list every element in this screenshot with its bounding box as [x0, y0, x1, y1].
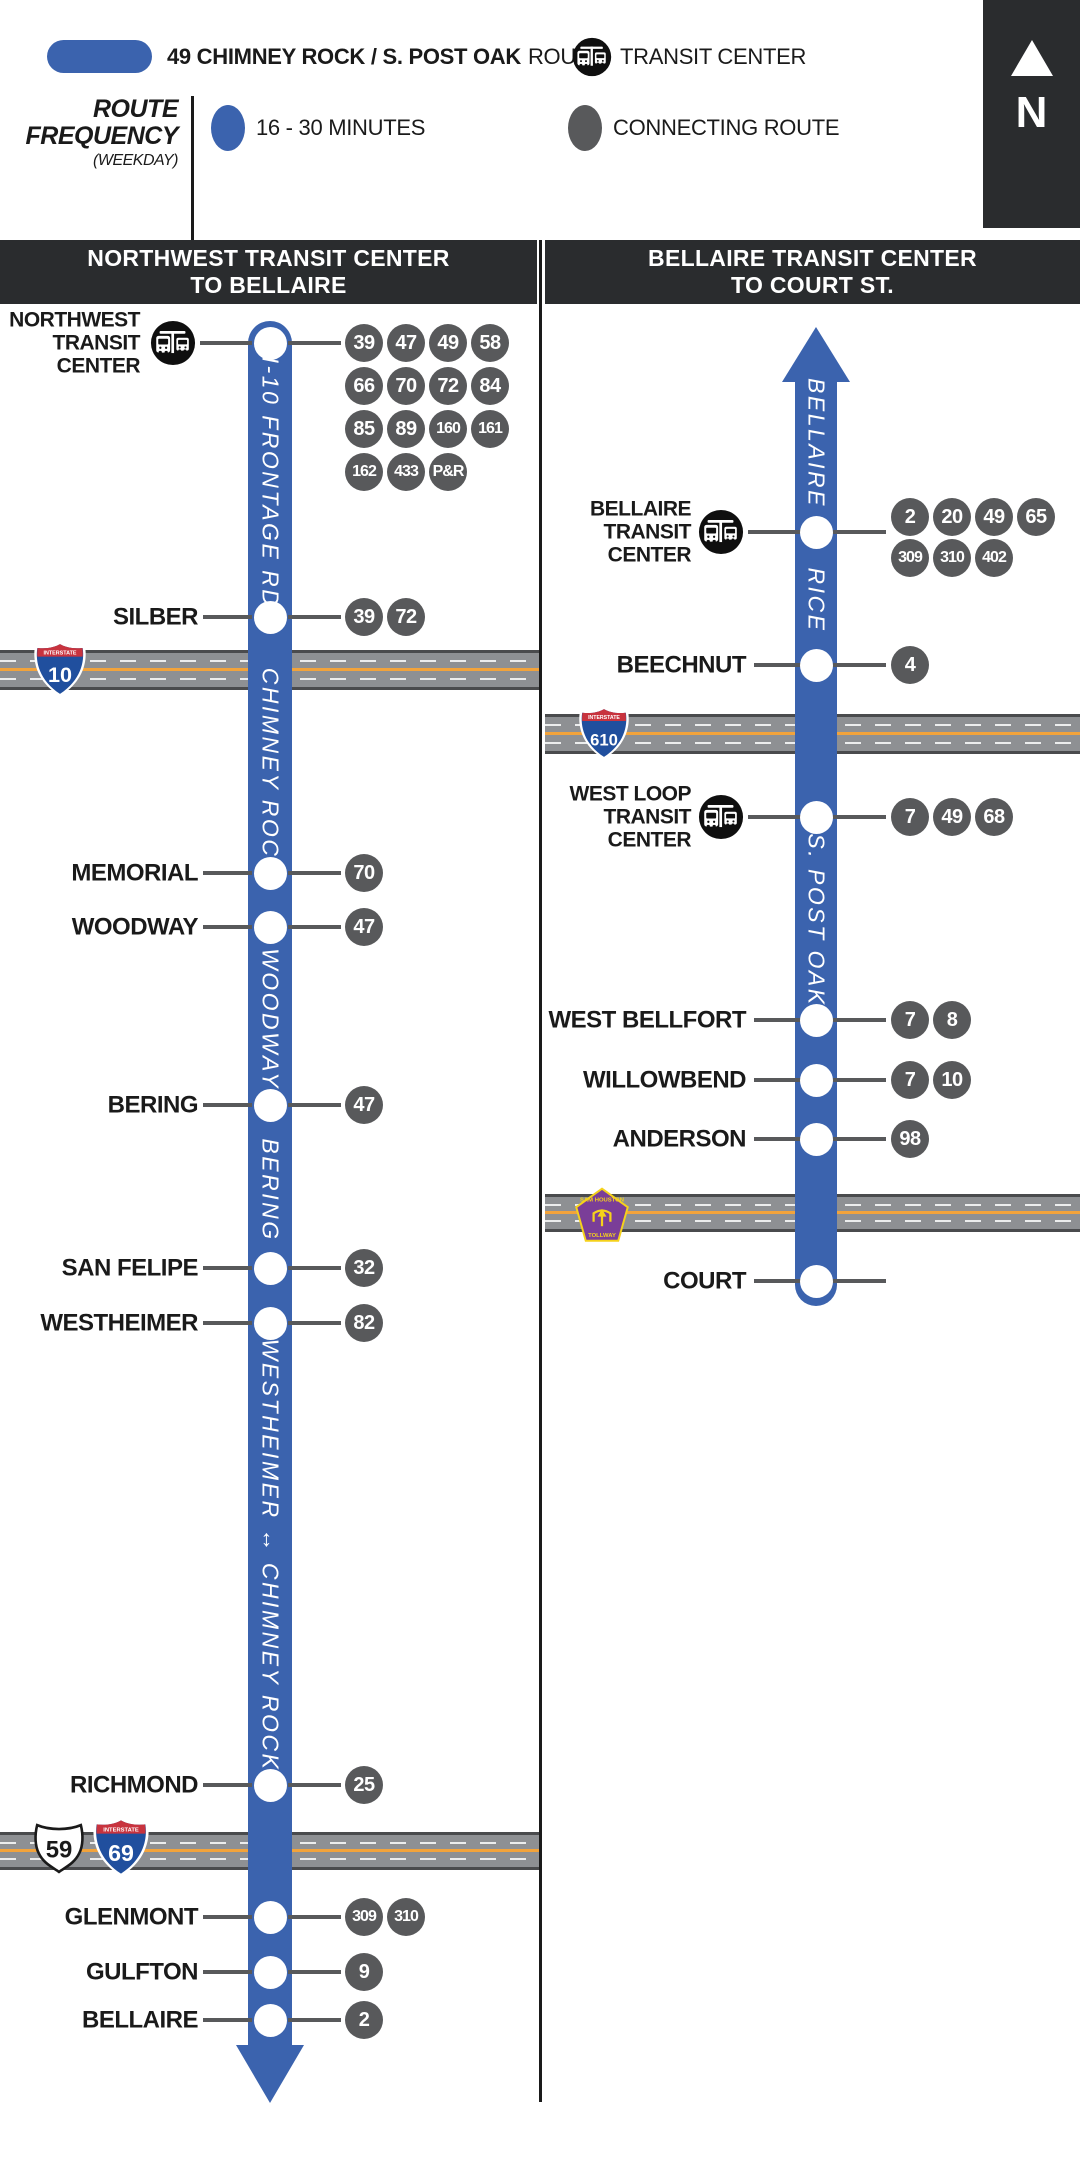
stop-tick-left: [203, 1266, 252, 1270]
stop-label-line: CENTER: [570, 829, 692, 852]
stop-label-line: TRANSIT: [9, 332, 140, 355]
connecting-route-badge: 72: [387, 598, 425, 636]
stop-tick-left: [203, 2018, 252, 2022]
stop-label-line: BERING: [108, 1093, 198, 1118]
connecting-route-badge: 309: [345, 1898, 383, 1936]
stop-label-line: CENTER: [590, 544, 691, 567]
stop-label-line: WESTHEIMER: [40, 1311, 198, 1336]
stop-label: GULFTON: [86, 1960, 198, 1985]
stop-label-line: NORTHWEST: [9, 309, 140, 332]
stop-tick-left: [200, 341, 252, 345]
transit-center-icon: [698, 794, 744, 840]
svg-text:INTERSTATE: INTERSTATE: [103, 1828, 139, 1834]
stop-marker: [254, 1956, 287, 1989]
stop-tick-right: [833, 1279, 886, 1283]
route-frequency-line1: ROUTE: [26, 96, 178, 123]
stop-label-line: CENTER: [9, 355, 140, 378]
stop-tick-left: [203, 1970, 252, 1974]
street-name-label: WESTHEIMER ↔ CHIMNEY ROCK: [257, 1339, 284, 1772]
stop-tick-right: [833, 1078, 886, 1082]
stop-marker: [800, 1064, 833, 1097]
stop-marker: [800, 649, 833, 682]
route-line-swatch: [47, 40, 152, 73]
frequency-value-label: 16 - 30 MINUTES: [256, 115, 425, 141]
stop-label-line: BEECHNUT: [617, 653, 746, 678]
street-name-label: S. POST OAK: [803, 833, 830, 1006]
connecting-route-badge: 70: [387, 367, 425, 405]
stop-label: SAN FELIPE: [62, 1256, 198, 1281]
stop-tick-right: [288, 925, 341, 929]
highway-shield-69-icon: INTERSTATE69: [92, 1816, 150, 1878]
connecting-route-badge: 160: [429, 410, 467, 448]
north-label: N: [983, 88, 1080, 138]
stop-label-line: WOODWAY: [72, 915, 198, 940]
stop-tick-right: [833, 530, 886, 534]
street-name-label: I-10 FRONTAGE RD.: [257, 357, 284, 618]
connecting-route-badge: 49: [933, 798, 971, 836]
connecting-route-badge: 89: [387, 410, 425, 448]
connecting-route-icon: [568, 105, 602, 151]
stop-label: BELLAIRE: [82, 2008, 198, 2033]
stop-label: WESTHEIMER: [40, 1311, 198, 1336]
route-map-page: 49 CHIMNEY ROCK / S. POST OAKROUTE TRANS…: [0, 0, 1080, 2161]
svg-text:69: 69: [108, 1840, 134, 1866]
stop-label: RICHMOND: [70, 1773, 198, 1798]
street-name-label: CHIMNEY ROCK: [257, 668, 284, 877]
connecting-route-badge: 9: [345, 1953, 383, 1991]
stop-marker: [254, 1901, 287, 1934]
north-arrow-icon: [1011, 40, 1053, 76]
connecting-route-badge: P&R: [429, 453, 467, 491]
stop-tick-right: [833, 663, 886, 667]
street-name-label: BERING: [257, 1138, 284, 1241]
transit-center-legend-label: TRANSIT CENTER: [620, 44, 806, 70]
connecting-route-badge: 433: [387, 453, 425, 491]
stop-label-line: TRANSIT: [590, 521, 691, 544]
stop-marker: [254, 1307, 287, 1340]
column-header-northwest-to-bellaire: NORTHWEST TRANSIT CENTERTO BELLAIRE: [0, 240, 537, 304]
stop-tick-right: [288, 1266, 341, 1270]
stop-label: WILLOWBEND: [583, 1068, 746, 1093]
column-divider: [539, 240, 542, 2102]
stop-marker: [800, 1265, 833, 1298]
stop-tick-right: [833, 815, 886, 819]
stop-label: WOODWAY: [72, 915, 198, 940]
stop-label-line: WILLOWBEND: [583, 1068, 746, 1093]
connecting-route-badge: 7: [891, 798, 929, 836]
connecting-route-badge: 309: [891, 539, 929, 577]
stop-tick-left: [748, 530, 801, 534]
connecting-route-badge: 49: [429, 324, 467, 362]
stop-label-line: RICHMOND: [70, 1773, 198, 1798]
stop-tick-left: [754, 1018, 801, 1022]
highway-shield-10-icon: INTERSTATE10: [33, 640, 87, 698]
stop-label-line: GLENMONT: [65, 1905, 198, 1930]
stop-tick-right: [833, 1018, 886, 1022]
connecting-route-badge: 68: [975, 798, 1013, 836]
connecting-route-badge: 47: [345, 908, 383, 946]
connecting-route-badge: 7: [891, 1001, 929, 1039]
stop-label: GLENMONT: [65, 1905, 198, 1930]
column-header-line: NORTHWEST TRANSIT CENTER: [0, 245, 537, 272]
stop-tick-left: [754, 1137, 801, 1141]
legend-divider: [191, 96, 194, 240]
route-frequency-line2: FREQUENCY: [26, 123, 178, 150]
stop-label-line: BELLAIRE: [590, 498, 691, 521]
stop-tick-right: [288, 1103, 341, 1107]
connecting-route-badge: 25: [345, 1766, 383, 1804]
stop-label: SILBER: [113, 605, 198, 630]
highway-shield-610-icon: INTERSTATE610: [578, 704, 630, 762]
stop-tick-left: [203, 1103, 252, 1107]
connecting-route-label: CONNECTING ROUTE: [613, 115, 839, 141]
stop-label: NORTHWESTTRANSITCENTER: [9, 309, 140, 378]
connecting-route-badge: 10: [933, 1061, 971, 1099]
stop-tick-left: [203, 925, 252, 929]
stop-tick-left: [754, 1279, 801, 1283]
stop-marker: [254, 911, 287, 944]
connecting-route-badge: 8: [933, 1001, 971, 1039]
connecting-route-badge: 70: [345, 854, 383, 892]
connecting-route-badge: 20: [933, 498, 971, 536]
stop-label-line: WEST BELLFORT: [549, 1008, 746, 1033]
stop-label-line: TRANSIT: [570, 806, 692, 829]
connecting-route-badge: 47: [345, 1086, 383, 1124]
transit-center-icon: [698, 509, 744, 555]
stop-tick-right: [288, 1915, 341, 1919]
column-header-line: TO COURT ST.: [545, 272, 1080, 299]
stop-marker: [254, 327, 287, 360]
connecting-route-badge: 72: [429, 367, 467, 405]
stop-marker: [800, 516, 833, 549]
stop-marker: [254, 601, 287, 634]
stop-label: COURT: [663, 1269, 746, 1294]
connecting-route-badge: 310: [387, 1898, 425, 1936]
stop-label: BERING: [108, 1093, 198, 1118]
svg-text:INTERSTATE: INTERSTATE: [588, 715, 620, 721]
connecting-route-badge: 39: [345, 598, 383, 636]
stop-tick-left: [203, 1321, 252, 1325]
svg-text:SAM HOUSTON: SAM HOUSTON: [580, 1198, 624, 1204]
stop-marker: [254, 1089, 287, 1122]
stop-label-line: SILBER: [113, 605, 198, 630]
stop-label-line: GULFTON: [86, 1960, 198, 1985]
stop-tick-right: [288, 341, 341, 345]
stop-marker: [254, 1769, 287, 1802]
stop-label-line: MEMORIAL: [71, 861, 198, 886]
column-header-line: BELLAIRE TRANSIT CENTER: [545, 245, 1080, 272]
stop-tick-left: [748, 815, 801, 819]
stop-label-line: ANDERSON: [613, 1127, 746, 1152]
stop-label-line: COURT: [663, 1269, 746, 1294]
stop-label-line: SAN FELIPE: [62, 1256, 198, 1281]
stop-tick-left: [203, 1915, 252, 1919]
connecting-route-badge: 65: [1017, 498, 1055, 536]
route-frequency-title: ROUTE FREQUENCY (WEEKDAY): [26, 96, 178, 172]
connecting-route-badge: 66: [345, 367, 383, 405]
stop-label: WEST LOOPTRANSITCENTER: [570, 783, 692, 852]
stop-label: WEST BELLFORT: [549, 1008, 746, 1033]
connecting-route-badge: 2: [345, 2001, 383, 2039]
transit-center-icon: [150, 320, 196, 366]
route-arrow-down-icon: [236, 2045, 304, 2103]
connecting-route-badge: 402: [975, 539, 1013, 577]
svg-text:59: 59: [46, 1836, 73, 1863]
route-name: 49 CHIMNEY ROCK / S. POST OAK: [167, 44, 521, 69]
stop-label: ANDERSON: [613, 1127, 746, 1152]
svg-text:TOLLWAY: TOLLWAY: [588, 1233, 616, 1239]
street-name-label: BELLAIRE: [803, 378, 830, 508]
connecting-route-badge: 85: [345, 410, 383, 448]
connecting-route-badge: 310: [933, 539, 971, 577]
connecting-route-badge: 2: [891, 498, 929, 536]
stop-tick-left: [203, 1783, 252, 1787]
stop-tick-right: [288, 871, 341, 875]
connecting-route-badge: 49: [975, 498, 1013, 536]
highway-shield-59-icon: 59: [33, 1820, 85, 1876]
stop-label-line: WEST LOOP: [570, 783, 692, 806]
route-title: 49 CHIMNEY ROCK / S. POST OAKROUTE: [167, 44, 603, 70]
route-arrow-up-icon: [782, 327, 850, 382]
stop-label: BELLAIRETRANSITCENTER: [590, 498, 691, 567]
connecting-route-badge: 98: [891, 1120, 929, 1158]
stop-tick-left: [203, 615, 252, 619]
stop-marker: [800, 1004, 833, 1037]
stop-tick-right: [288, 1970, 341, 1974]
sam-houston-tollway-shield-icon: SAM HOUSTONTOLLWAY: [574, 1186, 630, 1244]
stop-marker: [254, 1252, 287, 1285]
frequency-marker-icon: [211, 105, 245, 151]
stop-tick-right: [288, 1783, 341, 1787]
route-frequency-note: (WEEKDAY): [26, 150, 178, 172]
stop-tick-left: [754, 663, 801, 667]
column-header-bellaire-to-court: BELLAIRE TRANSIT CENTERTO COURT ST.: [545, 240, 1080, 304]
stop-tick-right: [288, 615, 341, 619]
svg-text:INTERSTATE: INTERSTATE: [43, 651, 76, 657]
connecting-route-badge: 32: [345, 1249, 383, 1287]
connecting-route-badge: 39: [345, 324, 383, 362]
stop-label-line: BELLAIRE: [82, 2008, 198, 2033]
stop-tick-right: [833, 1137, 886, 1141]
column-header-line: TO BELLAIRE: [0, 272, 537, 299]
street-name-label: WOODWAY: [257, 948, 284, 1090]
svg-text:610: 610: [590, 730, 618, 749]
connecting-route-badge: 4: [891, 646, 929, 684]
svg-text:10: 10: [48, 662, 72, 687]
connecting-route-badge: 7: [891, 1061, 929, 1099]
stop-marker: [800, 1123, 833, 1156]
stop-marker: [254, 2004, 287, 2037]
connecting-route-badge: 162: [345, 453, 383, 491]
street-name-label: RICE: [803, 568, 830, 633]
connecting-route-badge: 58: [471, 324, 509, 362]
stop-tick-right: [288, 1321, 341, 1325]
stop-tick-right: [288, 2018, 341, 2022]
stop-label: BEECHNUT: [617, 653, 746, 678]
connecting-route-badge: 161: [471, 410, 509, 448]
stop-tick-left: [754, 1078, 801, 1082]
stop-label: MEMORIAL: [71, 861, 198, 886]
connecting-route-badge: 47: [387, 324, 425, 362]
stop-tick-left: [203, 871, 252, 875]
stop-marker: [254, 857, 287, 890]
connecting-route-badge: 82: [345, 1304, 383, 1342]
connecting-route-badge: 84: [471, 367, 509, 405]
stop-marker: [800, 801, 833, 834]
transit-center-icon: [572, 37, 612, 77]
north-indicator: N: [983, 0, 1080, 228]
